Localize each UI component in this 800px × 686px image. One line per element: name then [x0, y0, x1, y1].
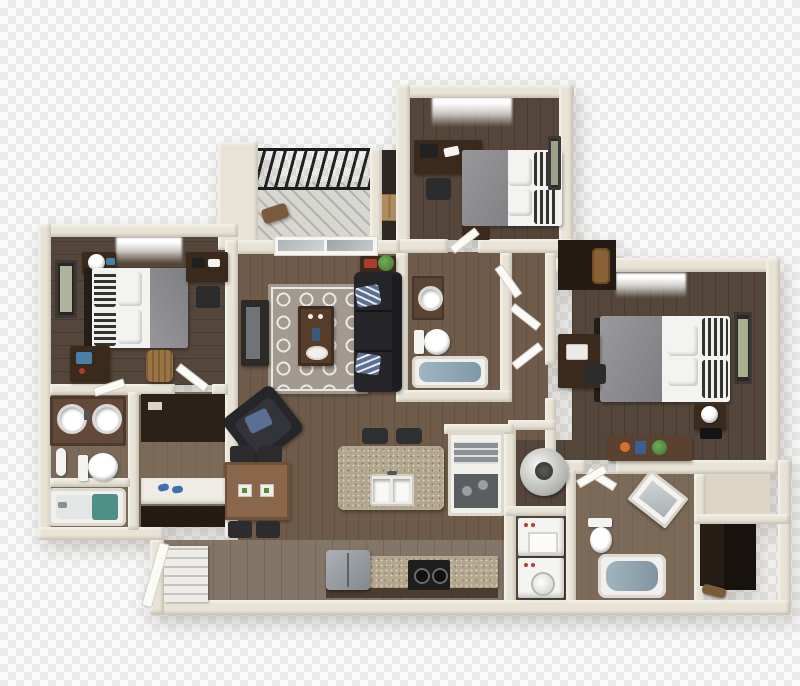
floor-plan-image [0, 0, 800, 686]
staircase [164, 546, 208, 602]
entry-hall [0, 0, 800, 686]
floor-plan [0, 0, 800, 686]
